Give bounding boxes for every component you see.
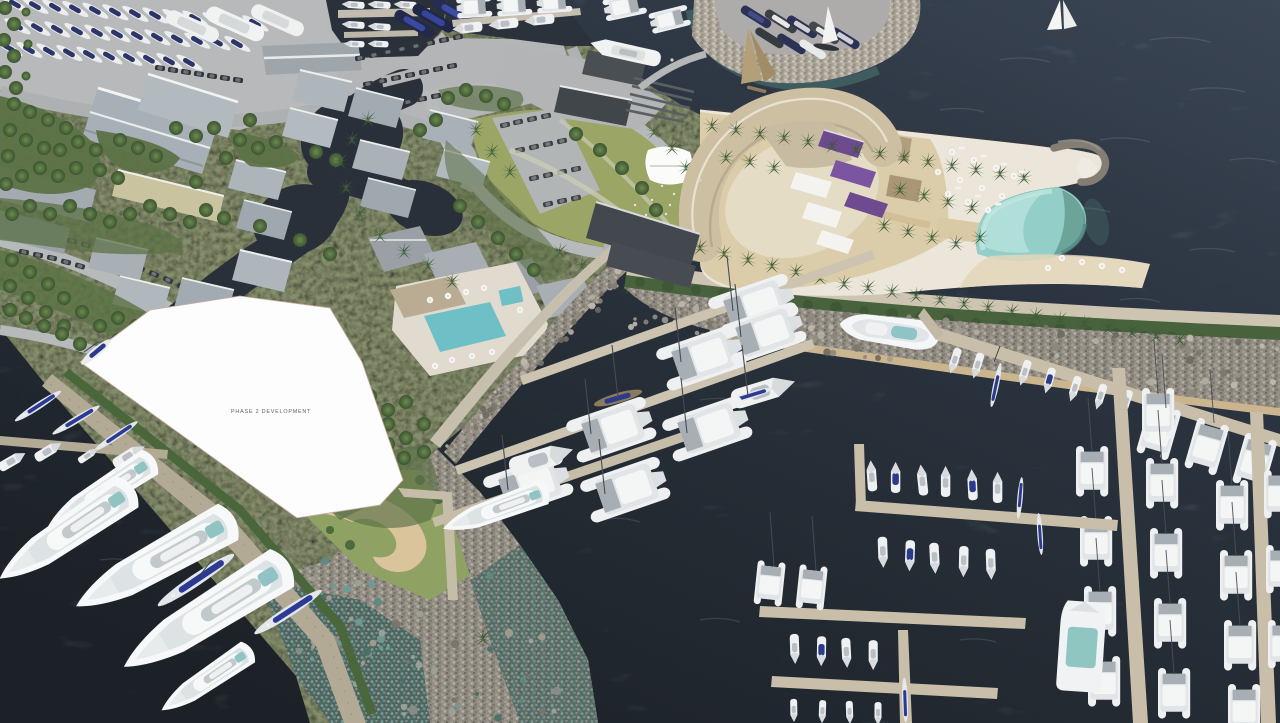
svg-text:PHASE 2 DEVELOPMENT: PHASE 2 DEVELOPMENT [231, 409, 311, 415]
